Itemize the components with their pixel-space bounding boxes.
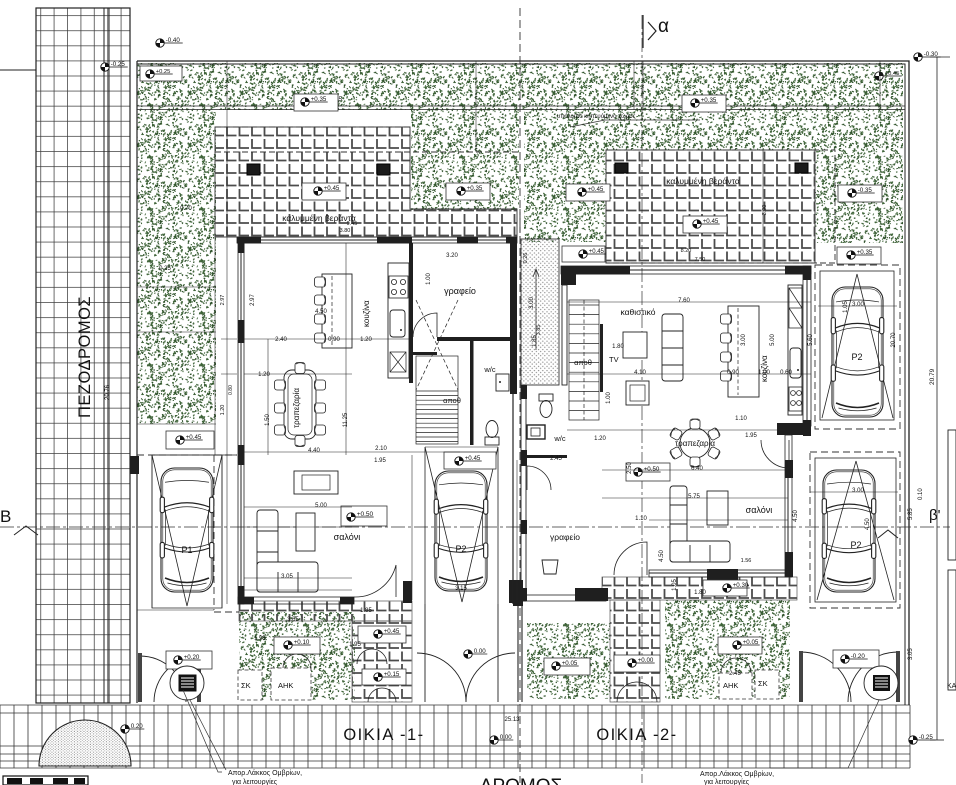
svg-text:4.50: 4.50 [793,510,799,522]
svg-text:+0.35: +0.35 [857,249,873,256]
svg-text:+0.45: +0.45 [589,249,605,255]
svg-text:αποθ: αποθ [443,396,461,405]
svg-text:καλυμμένη βεράντα: καλυμμένη βεράντα [666,176,740,186]
svg-text:20.76: 20.76 [105,384,111,400]
svg-text:3.85: 3.85 [536,325,542,336]
svg-text:+0.35: +0.35 [467,185,483,192]
svg-text:20.79: 20.79 [929,368,936,385]
svg-text:3.00: 3.00 [529,297,535,309]
svg-text:+0.45: +0.45 [885,71,900,77]
svg-text:1.20: 1.20 [258,372,270,378]
svg-text:α: α [658,16,669,37]
svg-text:6.40: 6.40 [691,466,703,472]
svg-text:8.20: 8.20 [681,248,692,254]
svg-text:3.80: 3.80 [340,228,351,234]
svg-text:0.70: 0.70 [180,206,192,212]
svg-text:ΣΚ: ΣΚ [758,679,768,688]
svg-text:+0.20: +0.20 [184,654,200,661]
svg-text:σαλόνι: σαλόνι [746,505,773,515]
svg-text:+0.45: +0.45 [465,455,481,462]
svg-text:2.50: 2.50 [627,462,633,474]
svg-text:1.05: 1.05 [672,579,678,591]
svg-text:4.50: 4.50 [865,518,871,530]
svg-text:3.00: 3.00 [852,302,864,308]
svg-text:+0.45: +0.45 [186,434,202,441]
svg-text:1.00: 1.00 [758,370,770,376]
svg-text:5.00: 5.00 [770,334,776,346]
svg-text:+0.45: +0.45 [324,185,340,192]
svg-text:0.25: 0.25 [159,266,171,272]
svg-text:3.20: 3.20 [446,253,458,259]
svg-text:4.10: 4.10 [634,370,646,376]
svg-text:ΟΙΚΙΑ -1-: ΟΙΚΙΑ -1- [343,726,424,744]
svg-text:P2: P2 [455,544,466,554]
svg-text:+0.25: +0.25 [156,69,171,75]
svg-text:ΚΑ: ΚΑ [947,683,956,690]
svg-text:3.00: 3.00 [741,334,747,346]
svg-text:β': β' [929,507,941,524]
svg-text:γραφείο: γραφείο [550,532,580,542]
svg-text:1.20: 1.20 [360,337,372,343]
svg-text:υπόλοιπο κηπευόμενο χώρος: υπόλοιπο κηπευόμενο χώρος [557,113,636,120]
svg-text:2.40: 2.40 [275,337,287,343]
svg-text:γραφείο: γραφείο [444,286,476,296]
svg-text:5.60: 5.60 [808,334,814,346]
svg-text:-0.25: -0.25 [111,61,126,68]
svg-text:4.50: 4.50 [315,309,327,315]
svg-text:25.13: 25.13 [504,717,520,723]
svg-text:TV: TV [609,355,619,364]
svg-text:P2: P2 [851,352,862,362]
svg-text:τραπεζαρία: τραπεζαρία [292,388,301,428]
svg-text:καθιστικό: καθιστικό [620,307,655,317]
svg-text:+0.35: +0.35 [311,96,327,103]
svg-text:w/c: w/c [483,365,496,374]
svg-text:1.20: 1.20 [594,436,606,442]
svg-text:+0.05: +0.05 [743,639,759,646]
svg-text:κουζίνα: κουζίνα [760,355,769,382]
svg-text:-0.35: -0.35 [858,187,873,194]
svg-text:1.85: 1.85 [532,335,538,347]
svg-text:ΟΙΚΙΑ -2-: ΟΙΚΙΑ -2- [596,726,677,744]
svg-text:τραπεζαρία: τραπεζαρία [675,439,715,448]
svg-text:7.60: 7.60 [678,298,690,304]
svg-text:ΠΕΖΟΔΡΟΜΟΣ: ΠΕΖΟΔΡΟΜΟΣ [76,296,94,418]
svg-text:1.85: 1.85 [360,608,372,614]
svg-text:0.26: 0.26 [523,253,529,264]
svg-text:3.00: 3.00 [852,488,864,494]
svg-text:0.20: 0.20 [131,723,144,730]
svg-text:0.00: 0.00 [500,734,513,741]
svg-text:+0.15: +0.15 [384,671,400,678]
svg-text:1.56: 1.56 [741,558,752,564]
svg-text:κουζίνα: κουζίνα [362,300,371,327]
svg-text:w/c: w/c [553,434,566,443]
svg-text:3.65: 3.65 [287,617,299,623]
svg-text:0.90: 0.90 [328,337,340,343]
svg-text:1.00: 1.00 [606,392,612,404]
svg-text:1.20: 1.20 [220,405,226,416]
svg-text:7.50: 7.50 [695,257,706,263]
svg-text:2.45: 2.45 [550,456,562,462]
svg-text:αποθ: αποθ [574,358,592,367]
svg-text:+0.45: +0.45 [703,218,719,225]
svg-text:Απορ.Λάκκος Ομβρίων,: Απορ.Λάκκος Ομβρίων, [700,770,774,778]
svg-text:2.10: 2.10 [375,446,387,452]
svg-text:2.97: 2.97 [220,295,226,306]
svg-text:σαλόνι: σαλόνι [334,532,361,542]
svg-text:9.45: 9.45 [347,221,358,227]
svg-text:-0.40: -0.40 [166,37,181,44]
svg-text:4.50: 4.50 [659,550,665,562]
svg-text:1.80: 1.80 [612,344,624,350]
svg-text:1.10: 1.10 [635,516,647,522]
svg-text:0.90: 0.90 [727,370,739,376]
svg-text:+0.00: +0.00 [638,657,654,664]
svg-text:3.05: 3.05 [281,574,293,580]
svg-text:0.00: 0.00 [474,648,487,655]
svg-text:3.05: 3.05 [908,648,914,660]
svg-text:-0.20: -0.20 [851,653,866,660]
svg-text:0.80: 0.80 [228,385,234,395]
svg-text:+0.05: +0.05 [562,660,578,667]
svg-text:P1: P1 [181,545,192,555]
svg-text:ΔΡΟΜΟΣ: ΔΡΟΜΟΣ [480,776,563,785]
svg-text:για λειτουργίες: για λειτουργίες [232,778,278,785]
svg-text:ΑΗΚ: ΑΗΚ [278,681,293,690]
svg-text:ΣΚ: ΣΚ [241,681,251,690]
svg-text:Β: Β [0,507,11,526]
svg-text:2.45: 2.45 [729,671,741,677]
svg-text:+0.45: +0.45 [384,628,400,635]
svg-text:0.10: 0.10 [918,488,924,500]
svg-text:+0.50: +0.50 [357,511,374,518]
svg-text:2.97: 2.97 [250,294,256,306]
svg-text:1.95: 1.95 [349,642,361,648]
svg-text:20.70: 20.70 [891,332,897,348]
svg-text:1.10: 1.10 [735,416,747,422]
svg-text:για λειτουργίες: για λειτουργίες [704,778,750,785]
svg-text:5.75: 5.75 [688,494,700,500]
svg-text:5.85: 5.85 [908,508,914,520]
svg-text:4.40: 4.40 [308,448,320,454]
svg-text:5.00: 5.00 [315,503,327,509]
svg-text:Απορ.Λάκκος Ομβρίων,: Απορ.Λάκκος Ομβρίων, [228,769,302,777]
svg-text:1.00: 1.00 [426,273,432,285]
svg-text:0.60: 0.60 [780,370,792,376]
svg-text:1.95: 1.95 [745,433,757,439]
svg-text:+0.35: +0.35 [701,97,717,104]
svg-text:+0.50: +0.50 [644,466,660,473]
svg-text:+0.45: +0.45 [588,186,604,193]
svg-text:3.15: 3.15 [455,586,467,592]
svg-text:1.95: 1.95 [254,636,266,642]
svg-text:ΑΗΚ: ΑΗΚ [723,681,738,690]
svg-text:1.95: 1.95 [374,458,386,464]
svg-text:P2: P2 [850,540,861,550]
svg-text:1.80: 1.80 [694,590,706,596]
svg-text:+0.30: +0.30 [733,582,749,589]
svg-text:1.05: 1.05 [843,301,849,313]
svg-text:+0.10: +0.10 [294,639,310,646]
svg-text:καλυμμένη βεράντα: καλυμμένη βεράντα [282,213,356,223]
